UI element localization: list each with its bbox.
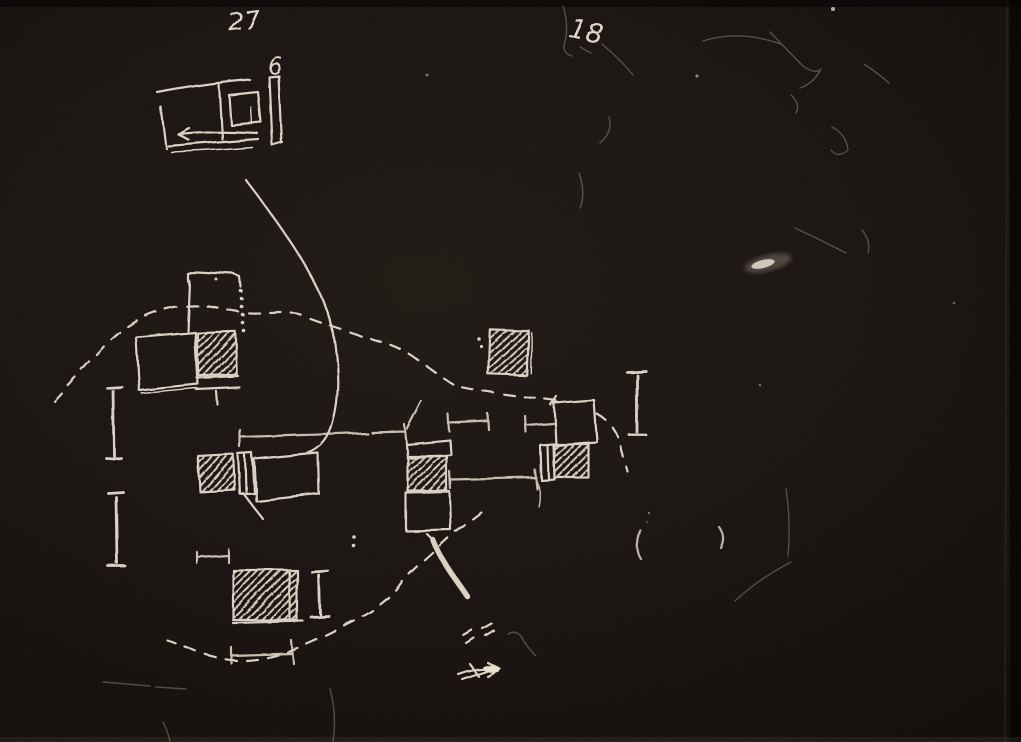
hatch-fill: [197, 331, 236, 375]
hatched-block-5: [488, 329, 533, 375]
paper-top-edge: [0, 0, 1021, 7]
hatch-fill: [198, 454, 235, 492]
paper-right-edge: [1010, 0, 1021, 742]
bottom-building: [233, 570, 303, 623]
hatch-fill: [554, 444, 588, 477]
hatched-block-4: [554, 444, 588, 477]
hatch-fill: [408, 456, 447, 491]
hatch-fill: [233, 570, 297, 620]
page-number-label: 27: [227, 5, 262, 38]
sketch-canvas: 27 6 18: [0, 0, 1021, 742]
paper-bottom-edge: [0, 737, 1021, 742]
hatched-block-3: [408, 456, 447, 491]
hatched-block-2: [198, 454, 235, 492]
sketch-page: 27 6 18: [0, 0, 1021, 742]
inner-wall-line: [289, 572, 290, 618]
hatched-block-6: [233, 570, 297, 620]
plan-inner-tick: [251, 107, 252, 124]
hatched-block-1: [197, 331, 236, 375]
hatch-fill: [488, 329, 529, 375]
